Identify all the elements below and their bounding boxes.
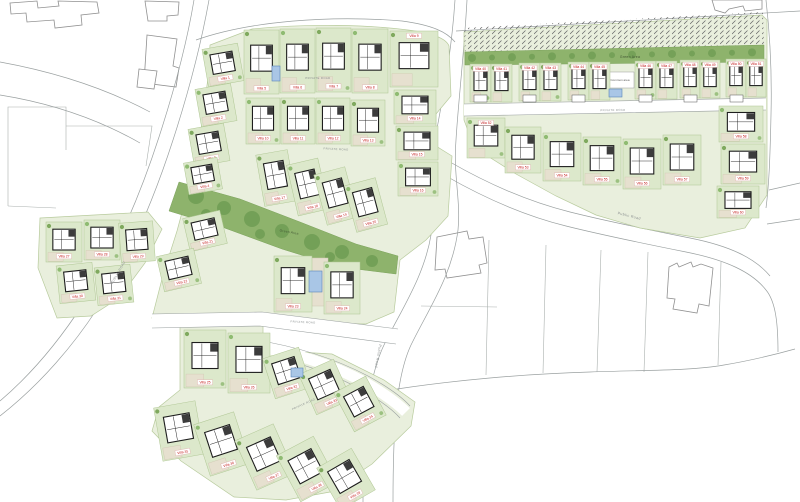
villa-label: Villa 47 (661, 64, 672, 68)
villa-plot: Villa 23 (274, 256, 312, 312)
villa-label: Villa 58 (735, 135, 746, 139)
garage (572, 95, 585, 102)
tree-icon (556, 95, 560, 99)
villa-label: Villa 55 (596, 178, 607, 182)
villa-label: Villa 23 (287, 305, 298, 309)
tree-icon (221, 382, 225, 386)
tree-icon (718, 188, 722, 192)
villa-plot: Villa 43 (540, 63, 561, 101)
tree-icon (748, 48, 756, 56)
villa-plot: Villa 12 (316, 98, 350, 144)
villa-label: Villa 11 (293, 137, 304, 141)
tree-icon (245, 32, 249, 36)
villa-label: Villa 13 (362, 139, 373, 143)
swimming-pool (609, 89, 622, 97)
existing-building (137, 69, 157, 89)
villa-plot: Villa 13 (351, 100, 385, 146)
tree-icon (391, 33, 395, 37)
villa-plot: Villa 47 (656, 61, 677, 99)
private-road-label: PRIVATE ROAD (305, 76, 330, 80)
tree-icon (281, 31, 285, 35)
tree-icon (508, 53, 516, 61)
villa-plot: Villa 5 (244, 30, 279, 94)
villa-label: Villa 40 (475, 67, 486, 71)
villa-plot: Villa 53 (505, 127, 541, 173)
villa-label: Villa 41 (496, 67, 507, 71)
existing-building (712, 0, 762, 13)
tree-icon (715, 92, 719, 96)
tree-icon (353, 31, 357, 35)
villa-label: Villa 50 (730, 62, 741, 66)
villa-plot: Villa 14 (394, 90, 436, 124)
garage (523, 95, 536, 102)
swimming-pool (309, 271, 322, 292)
villa-label: Villa 10 (257, 137, 268, 141)
tree-icon (609, 52, 615, 58)
tree-icon (616, 179, 620, 183)
villa-plot: Villa 58 (719, 106, 763, 142)
villa-plot: Villa 10 (246, 98, 280, 144)
villa-plot: Villa 54 (543, 133, 581, 181)
villa-plot: Villa 60 (717, 186, 759, 218)
tree-icon (668, 50, 676, 58)
tree-icon (366, 255, 378, 267)
villa-label: Villa 49 (704, 63, 715, 67)
tree-icon (624, 141, 628, 145)
villa-label: Villa 12 (327, 137, 338, 141)
villa-label: Villa 48 (684, 63, 695, 67)
villa-plot: Villa 6 (280, 29, 315, 93)
villa-label: Villa 6 (293, 86, 302, 90)
villa-plot: Villa 24 (324, 262, 360, 314)
villa-label: Villa 24 (336, 307, 347, 311)
villa-label: Villa 45 (594, 65, 605, 69)
villa-plot: Villa 48 (680, 60, 700, 98)
villa-label: Villa 59 (737, 177, 748, 181)
terrace (493, 93, 502, 101)
tree-icon (397, 128, 401, 132)
tree-icon (317, 100, 321, 104)
tree-icon (664, 137, 668, 141)
garage (684, 95, 697, 102)
villa-label: Villa 52 (480, 121, 491, 125)
public-road-label: Public Road (374, 344, 382, 368)
tree-icon (722, 146, 726, 150)
tree-icon (244, 211, 260, 227)
villa-plot: Villa 28 (84, 220, 120, 260)
tree-icon (325, 264, 329, 268)
villa-plot: Villa 30 (56, 262, 96, 304)
villa-plot: Villa 4 (183, 157, 222, 194)
tree-icon (529, 54, 535, 60)
villa-plot: Villa 15 (396, 126, 438, 160)
existing-building (667, 262, 713, 313)
villa-label: Villa 16 (412, 189, 423, 193)
villa-plot: Villa 51 (746, 59, 766, 97)
terrace (392, 74, 412, 86)
villa-label: Villa 15 (411, 153, 422, 157)
tree-icon (468, 54, 476, 62)
private-road-label: PRIVATE ROAD (600, 108, 625, 112)
garage (474, 95, 487, 102)
villa-label: Villa 44 (573, 65, 584, 69)
villa-label: Villa 28 (96, 253, 107, 257)
villa-label: Villa 57 (676, 178, 687, 182)
villa-plot: Villa 57 (663, 135, 701, 185)
tree-icon (569, 53, 575, 59)
tree-icon (185, 332, 189, 336)
existing-building (435, 231, 487, 278)
villa-label: Villa 14 (409, 117, 420, 121)
villa-label: Villa 5 (257, 87, 266, 91)
tree-icon (720, 108, 724, 112)
tree-icon (548, 52, 556, 60)
terrace (542, 92, 551, 100)
tree-icon (275, 258, 279, 262)
garage (730, 95, 743, 102)
tree-icon (649, 51, 655, 57)
tree-icon (588, 52, 596, 60)
existing-building (10, 1, 99, 28)
villa-plot: Villa 56 (623, 139, 661, 189)
tree-icon (399, 164, 403, 168)
tree-icon (758, 136, 762, 140)
tree-icon (544, 135, 548, 139)
tree-icon (47, 224, 51, 228)
villa-label: Villa 43 (545, 66, 556, 70)
terrace (748, 88, 756, 96)
villa-plot: Villa 7 (316, 28, 351, 92)
south-boundary-road (397, 349, 795, 389)
villa-label: Villa 46 (640, 64, 651, 68)
tree-icon (506, 129, 510, 133)
villa-plot: Villa 27 (46, 222, 82, 262)
villa-plot: Villa 50 (726, 59, 746, 97)
existing-building (145, 1, 179, 21)
tree-icon (729, 50, 735, 56)
tree-icon (468, 120, 472, 124)
garage (639, 95, 652, 102)
villa-plot: Villa 25 (184, 330, 226, 388)
tree-icon (275, 138, 279, 142)
site-plan-svg: Villa 1Villa 2Villa 3Villa 4Villa 5Villa… (0, 0, 800, 502)
villa-label: Villa 51 (750, 62, 761, 66)
villa-plot: Villa 11 (281, 98, 315, 144)
swimming-pool (291, 368, 303, 377)
tree-icon (335, 245, 349, 259)
villa-plot: Villa 55 (583, 137, 621, 185)
tree-icon (304, 234, 320, 250)
villa-plot: Villa 45 (589, 62, 610, 100)
tree-icon (584, 139, 588, 143)
villa-plot: Villa 1 (202, 43, 244, 87)
tree-icon (247, 100, 251, 104)
terrace (658, 90, 667, 98)
villa-label: Villa 56 (636, 182, 647, 186)
villa-label: Villa 9 (409, 34, 418, 38)
tree-icon (500, 152, 504, 156)
villa-label: Villa 8 (365, 86, 374, 90)
villa-plot: Villa 59 (721, 144, 765, 184)
villa-plot: Villa 16 (398, 162, 438, 196)
site-plan: Villa 1Villa 2Villa 3Villa 4Villa 5Villa… (0, 0, 800, 502)
tree-icon (689, 51, 695, 57)
tree-icon (282, 100, 286, 104)
tree-icon (352, 102, 356, 106)
villa-plot: Villa 46 (635, 61, 656, 99)
tree-icon (433, 190, 437, 194)
tree-icon (395, 92, 399, 96)
terrace (591, 91, 600, 99)
tree-icon (115, 254, 119, 258)
villa-plot: Villa 31 (94, 264, 134, 306)
villa-label: Villa 25 (199, 381, 210, 385)
villa-plot: Villa 2 (195, 83, 237, 127)
villa-label: Villa 54 (556, 174, 567, 178)
villa-label: Villa 60 (732, 211, 743, 215)
tree-icon (380, 140, 384, 144)
tree-icon (346, 86, 350, 90)
tree-icon (489, 55, 495, 61)
villa-label: Villa 7 (329, 85, 338, 89)
tree-icon (229, 335, 233, 339)
villa-label: Villa 29 (132, 254, 143, 259)
tree-icon (317, 30, 321, 34)
tree-icon (255, 229, 265, 239)
terrace (702, 89, 710, 97)
villa-plot: Villa 49 (700, 60, 720, 98)
green-area-label: Green Area (620, 55, 640, 59)
villa-plot: Villa 41 (491, 64, 512, 102)
villa-plot: Villa 29 (119, 221, 156, 263)
villa-plot: Villa 44 (568, 62, 589, 100)
villa-label: Villa 27 (58, 255, 69, 259)
villa-label: Villa 42 (524, 66, 535, 70)
tree-icon (85, 222, 89, 226)
villa-plot: Villa 9 (390, 31, 438, 87)
tree-icon (708, 49, 716, 57)
terrace (469, 148, 485, 157)
villa-label: Villa 53 (517, 166, 528, 170)
common-area-label: Common area (610, 78, 629, 82)
villa-plot: Villa 52 (467, 118, 505, 158)
villa-label: Villa 26 (243, 386, 254, 390)
swimming-pool (272, 66, 280, 81)
villa-plot: Villa 8 (352, 29, 388, 93)
